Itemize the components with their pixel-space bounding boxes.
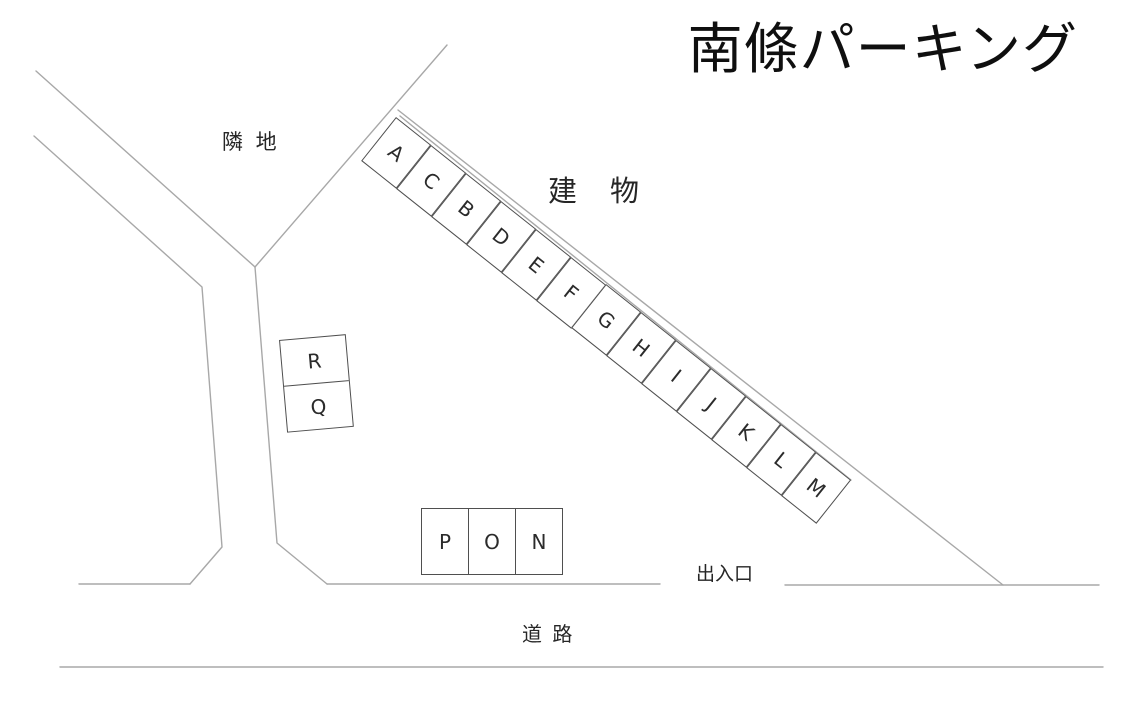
parking-space-q: Q [284, 380, 353, 431]
parking-row-pon: P O N [421, 508, 563, 575]
road-edge-upper-left [36, 71, 255, 267]
parking-space-o: O [468, 509, 515, 574]
parking-pair-rq: R Q [279, 334, 354, 432]
label-adjacent-land: 隣 地 [222, 126, 280, 156]
label-entrance-exit: 出入口 [696, 559, 753, 586]
road-edge-vertical-left [34, 136, 222, 584]
site-outline-drawing [0, 0, 1125, 708]
label-road: 道 路 [522, 618, 574, 647]
parking-space-p: P [422, 509, 468, 574]
parking-space-r: R [280, 335, 349, 385]
parking-space-n: N [515, 509, 562, 574]
page-title: 南條パーキング [688, 4, 1078, 84]
parking-site-map: 南條パーキング 隣 地 建 物 出入口 道 路 A C B D E F G H … [0, 0, 1125, 708]
label-building: 建 物 [548, 168, 641, 210]
